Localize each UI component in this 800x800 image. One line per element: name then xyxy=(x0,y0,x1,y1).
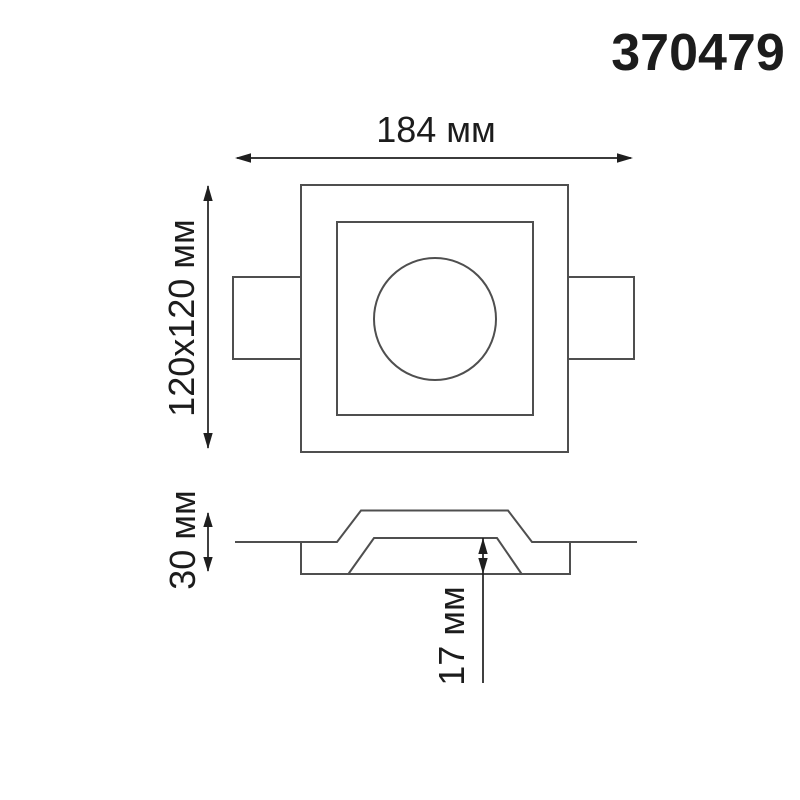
plan-inner-frame xyxy=(337,222,533,415)
technical-drawing-page: 370479 184 мм 120x120 мм xyxy=(0,0,800,800)
product-code: 370479 xyxy=(611,24,785,82)
section-view xyxy=(235,511,637,575)
drawing-svg: 370479 184 мм 120x120 мм xyxy=(0,0,800,800)
recess-arrow-down xyxy=(478,558,487,574)
width-arrow-left xyxy=(235,153,251,162)
section-recess-profile xyxy=(348,538,522,575)
width-dimension-label: 184 мм xyxy=(376,109,496,150)
dimension-height: 30 мм xyxy=(162,490,213,590)
width-arrow-right xyxy=(617,153,633,162)
dimension-width: 184 мм xyxy=(235,109,633,163)
recess-arrow-up xyxy=(478,538,487,554)
plan-lamp-opening-circle xyxy=(374,258,496,380)
recess-dimension-label: 17 мм xyxy=(431,586,472,686)
dimension-recess-depth: 17 мм xyxy=(431,538,488,686)
dimension-face: 120x120 мм xyxy=(161,185,213,449)
plan-view xyxy=(233,185,634,452)
height-arrow-top xyxy=(203,512,212,527)
height-arrow-bottom xyxy=(203,557,212,572)
height-dimension-label: 30 мм xyxy=(162,490,203,590)
face-dimension-label: 120x120 мм xyxy=(161,219,202,417)
face-arrow-bottom xyxy=(203,433,212,449)
plan-right-mount-tab xyxy=(568,277,634,359)
section-body-outline xyxy=(301,542,570,574)
face-arrow-top xyxy=(203,185,212,201)
plan-outer-frame xyxy=(301,185,568,452)
plan-left-mount-tab xyxy=(233,277,301,359)
